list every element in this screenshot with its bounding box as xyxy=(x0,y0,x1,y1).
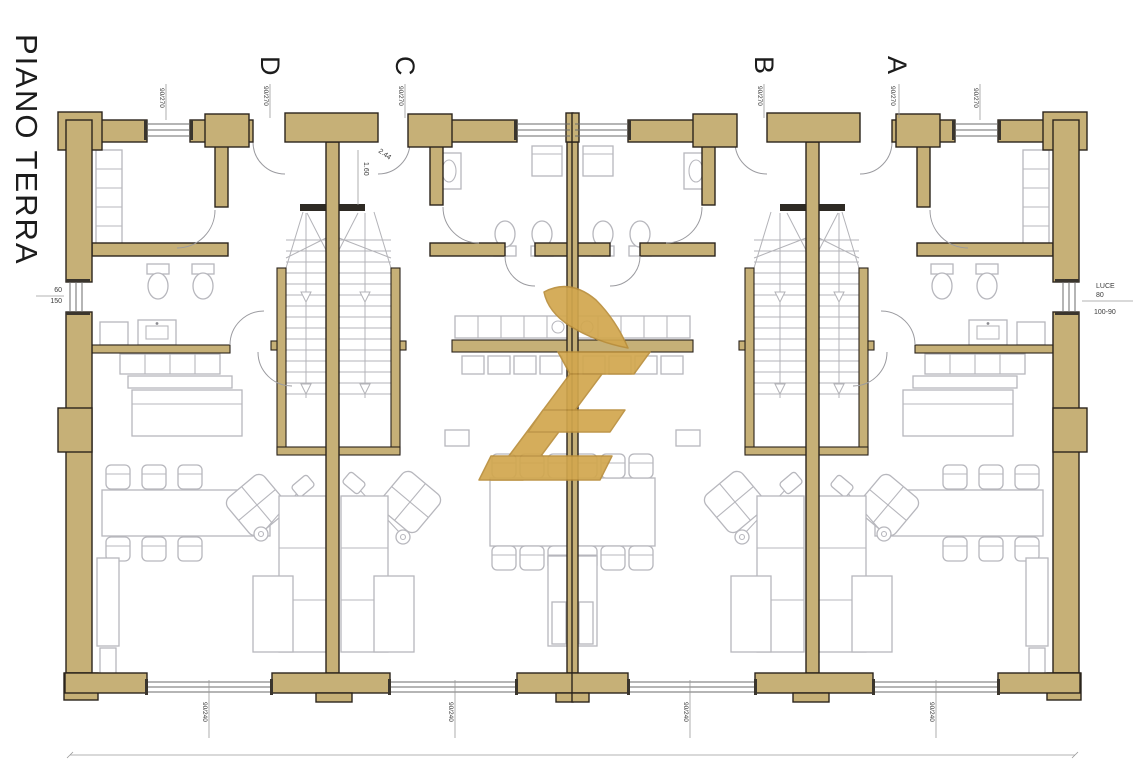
dimension-label: 90/270 xyxy=(262,86,269,106)
dimension-label: 1.60 xyxy=(362,162,369,176)
dimension-label: 90/270 xyxy=(889,86,896,106)
dimension-label: 90/240 xyxy=(682,702,689,722)
unit-label-d: D xyxy=(255,56,285,76)
furniture-unit-c xyxy=(341,146,572,652)
furniture-unit-d xyxy=(96,150,326,684)
dimension-label: LUCE xyxy=(1096,283,1115,290)
right-half-mirror xyxy=(572,112,1087,702)
dimension-label: 2.44 xyxy=(377,148,392,162)
dimension-label: 90/270 xyxy=(756,86,763,106)
dimension-label: 90/270 xyxy=(972,88,979,108)
dimension-label: 90/240 xyxy=(201,702,208,722)
unit-label-c: C xyxy=(390,56,420,76)
dimension-label: 60 xyxy=(54,287,62,294)
floor-plan-canvas: PIANO TERRA D C B A 90/270 90/270 90/270… xyxy=(0,0,1139,768)
dimension-label: 80 xyxy=(1096,292,1104,299)
dimension-label: 150 xyxy=(50,298,62,305)
unit-label-b: B xyxy=(749,56,779,74)
dimension-label: 100-90 xyxy=(1094,309,1116,316)
dimension-label: 90/270 xyxy=(158,88,165,108)
dimension-label: 90/270 xyxy=(397,86,404,106)
dimension-label: 90/240 xyxy=(928,702,935,722)
floor-plan-page: PIANO TERRA D C B A 90/270 90/270 90/270… xyxy=(0,0,1139,768)
dimension-label: 90/240 xyxy=(447,702,454,722)
page-title: PIANO TERRA xyxy=(9,34,44,266)
unit-label-a: A xyxy=(882,56,912,74)
